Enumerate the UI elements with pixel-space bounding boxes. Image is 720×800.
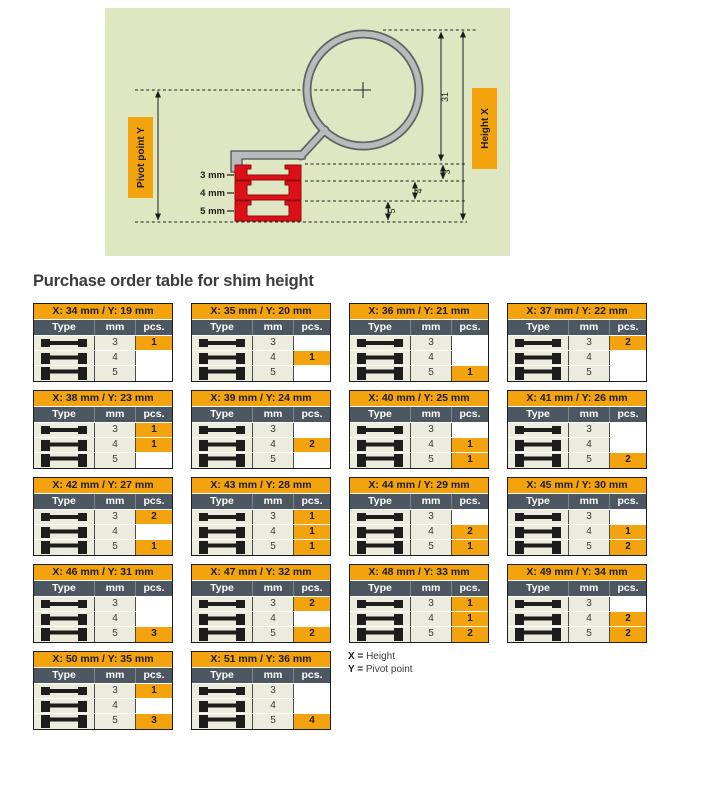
col-header-type: Type [508, 494, 569, 509]
clamp-diagram: 3 mm 4 mm 5 mm 31 3 4 5 Pivot point Y He… [105, 8, 510, 256]
table-row: 5 1 [192, 540, 330, 555]
pcs-value: 1 [452, 438, 488, 452]
table-title: X: 36 mm / Y: 21 mm [350, 304, 488, 320]
tables-grid: X: 34 mm / Y: 19 mm Type mm pcs. 3 1 4 5 [33, 303, 647, 730]
shim-4mm-icon [508, 351, 569, 365]
table-title: X: 48 mm / Y: 33 mm [350, 565, 488, 581]
table-title: X: 46 mm / Y: 31 mm [34, 565, 172, 581]
mm-value: 5 [569, 540, 610, 555]
pcs-value: 2 [294, 597, 330, 611]
table-row: 4 1 [350, 612, 488, 627]
shim-5mm-icon [192, 627, 253, 642]
legend: X = Height Y = Pivot point [348, 650, 413, 676]
pivot-point-badge: Pivot point Y [128, 117, 153, 198]
table-row: 4 [508, 438, 646, 453]
shim-3mm-label: 3 mm [200, 170, 225, 181]
pcs-value [452, 336, 488, 350]
table-header-row: Type mm pcs. [192, 407, 330, 423]
mm-value: 4 [411, 351, 452, 365]
shim-order-table: X: 50 mm / Y: 35 mm Type mm pcs. 3 1 4 5 [33, 651, 173, 730]
pcs-value: 1 [452, 453, 488, 468]
mm-value: 5 [569, 453, 610, 468]
mm-value: 5 [95, 627, 136, 642]
shim-4mm-icon [192, 525, 253, 539]
table-title: X: 37 mm / Y: 22 mm [508, 304, 646, 320]
pcs-value [610, 510, 646, 524]
table-row: 5 3 [34, 627, 172, 642]
pcs-value: 2 [610, 612, 646, 626]
col-header-pcs: pcs. [452, 320, 488, 335]
table-row: 3 1 [350, 597, 488, 612]
pcs-value: 1 [294, 540, 330, 555]
col-header-mm: mm [411, 581, 452, 596]
mm-value: 4 [411, 525, 452, 539]
mm-value: 5 [95, 453, 136, 468]
mm-value: 5 [253, 366, 294, 381]
shim-3mm-icon [508, 510, 569, 524]
pcs-value [136, 453, 172, 468]
table-header-row: Type mm pcs. [350, 581, 488, 597]
shim-3mm-icon [508, 423, 569, 437]
shim-3mm-icon [350, 510, 411, 524]
page-title: Purchase order table for shim height [33, 272, 314, 291]
table-row: 3 [192, 336, 330, 351]
pcs-value [294, 684, 330, 698]
shim-3mm-icon [192, 510, 253, 524]
table-row: 3 1 [34, 423, 172, 438]
shim-order-table: X: 51 mm / Y: 36 mm Type mm pcs. 3 4 5 4 [191, 651, 331, 730]
pcs-value [452, 351, 488, 365]
mm-value: 4 [253, 351, 294, 365]
col-header-mm: mm [569, 494, 610, 509]
col-header-type: Type [34, 494, 95, 509]
pcs-value [294, 366, 330, 381]
mm-value: 3 [95, 336, 136, 350]
mm-value: 3 [569, 336, 610, 350]
table-row: 4 1 [508, 525, 646, 540]
col-header-mm: mm [95, 320, 136, 335]
table-header-row: Type mm pcs. [192, 581, 330, 597]
shim-order-table: X: 37 mm / Y: 22 mm Type mm pcs. 3 2 4 5 [507, 303, 647, 382]
col-header-type: Type [508, 320, 569, 335]
shim-5mm-icon [350, 540, 411, 555]
table-row: 5 [192, 453, 330, 468]
shim-3mm-icon [350, 336, 411, 350]
pcs-value: 1 [294, 510, 330, 524]
shim-5mm-icon [350, 453, 411, 468]
shim-5mm-icon [508, 540, 569, 555]
shim-order-table: X: 36 mm / Y: 21 mm Type mm pcs. 3 4 5 1 [349, 303, 489, 382]
col-header-mm: mm [569, 320, 610, 335]
pcs-value [610, 351, 646, 365]
col-header-mm: mm [95, 494, 136, 509]
table-title: X: 40 mm / Y: 25 mm [350, 391, 488, 407]
col-header-mm: mm [253, 320, 294, 335]
shim-5mm-icon [508, 627, 569, 642]
pcs-value: 1 [136, 684, 172, 698]
table-row: 4 1 [34, 438, 172, 453]
pcs-value: 2 [452, 525, 488, 539]
legend-y-key: Y = [348, 664, 363, 675]
shim-5mm-icon [350, 627, 411, 642]
shim-4mm-icon [508, 438, 569, 452]
col-header-mm: mm [253, 668, 294, 683]
mm-value: 3 [411, 597, 452, 611]
shim-4mm-icon [34, 699, 95, 713]
legend-x-text: Height [366, 651, 395, 662]
mm-value: 3 [253, 336, 294, 350]
pcs-value: 2 [610, 453, 646, 468]
pcs-value: 3 [136, 627, 172, 642]
table-row: 3 [192, 423, 330, 438]
table-row: 4 [34, 351, 172, 366]
pcs-value [294, 612, 330, 626]
shim-3mm-icon [34, 597, 95, 611]
col-header-type: Type [192, 320, 253, 335]
dim-loop-31-value: 31 [440, 92, 450, 102]
table-header-row: Type mm pcs. [350, 320, 488, 336]
table-row: 5 [192, 366, 330, 381]
col-header-pcs: pcs. [136, 407, 172, 422]
table-title: X: 42 mm / Y: 27 mm [34, 478, 172, 494]
pcs-value [136, 366, 172, 381]
shim-3mm-icon [350, 423, 411, 437]
pcs-value [452, 510, 488, 524]
col-header-type: Type [350, 581, 411, 596]
mm-value: 4 [569, 525, 610, 539]
svg-text:Height X: Height X [480, 108, 491, 149]
pcs-value [136, 699, 172, 713]
shim-3mm-icon [34, 336, 95, 350]
col-header-pcs: pcs. [610, 320, 646, 335]
table-row: 4 [34, 612, 172, 627]
shim-5mm-icon [192, 366, 253, 381]
table-title: X: 45 mm / Y: 30 mm [508, 478, 646, 494]
legend-y: Y = Pivot point [348, 663, 413, 676]
dim-3-value: 3 [442, 169, 452, 174]
mm-value: 3 [411, 510, 452, 524]
table-title: X: 38 mm / Y: 23 mm [34, 391, 172, 407]
table-row: 4 [508, 351, 646, 366]
col-header-type: Type [508, 581, 569, 596]
table-row: 5 4 [192, 714, 330, 729]
col-header-type: Type [350, 407, 411, 422]
mm-value: 4 [569, 351, 610, 365]
col-header-mm: mm [253, 407, 294, 422]
table-row: 5 [34, 366, 172, 381]
shim-stack [235, 165, 301, 221]
col-header-pcs: pcs. [294, 668, 330, 683]
shim-4mm-icon [192, 612, 253, 626]
legend-x-key: X = [348, 651, 363, 662]
col-header-pcs: pcs. [452, 581, 488, 596]
shim-4mm-icon [508, 525, 569, 539]
shim-5mm-icon [192, 714, 253, 729]
shim-size-labels: 3 mm 4 mm 5 mm [200, 170, 234, 217]
table-title: X: 39 mm / Y: 24 mm [192, 391, 330, 407]
table-header-row: Type mm pcs. [192, 668, 330, 684]
table-row: 3 [508, 510, 646, 525]
mm-value: 5 [253, 540, 294, 555]
col-header-mm: mm [569, 581, 610, 596]
mm-value: 4 [95, 699, 136, 713]
table-row: 4 [192, 699, 330, 714]
mm-value: 5 [95, 540, 136, 555]
table-row: 3 [34, 597, 172, 612]
shim-5mm-icon [192, 540, 253, 555]
mm-value: 4 [411, 612, 452, 626]
table-header-row: Type mm pcs. [34, 494, 172, 510]
table-title: X: 35 mm / Y: 20 mm [192, 304, 330, 320]
shim-4mm-icon [34, 438, 95, 452]
table-title: X: 43 mm / Y: 28 mm [192, 478, 330, 494]
col-header-mm: mm [253, 581, 294, 596]
shim-3mm-icon [34, 423, 95, 437]
shim-order-table: X: 35 mm / Y: 20 mm Type mm pcs. 3 4 1 5 [191, 303, 331, 382]
shim-order-table: X: 46 mm / Y: 31 mm Type mm pcs. 3 4 5 3 [33, 564, 173, 643]
shim-4mm-icon [350, 612, 411, 626]
mm-value: 5 [411, 366, 452, 381]
shim-5mm-icon [34, 366, 95, 381]
col-header-mm: mm [253, 494, 294, 509]
shim-5mm-icon [192, 453, 253, 468]
mm-value: 3 [95, 510, 136, 524]
shim-5mm-icon [34, 540, 95, 555]
table-row: 4 [34, 525, 172, 540]
shim-5mm-icon [34, 627, 95, 642]
svg-text:Pivot point Y: Pivot point Y [136, 127, 147, 188]
mm-value: 4 [253, 438, 294, 452]
pcs-value: 2 [452, 627, 488, 642]
pcs-value [294, 699, 330, 713]
pcs-value: 2 [136, 510, 172, 524]
table-row: 4 [34, 699, 172, 714]
mm-value: 4 [253, 612, 294, 626]
shim-4mm-icon [34, 525, 95, 539]
shim-order-table: X: 44 mm / Y: 29 mm Type mm pcs. 3 4 2 5 [349, 477, 489, 556]
table-row: 4 1 [192, 351, 330, 366]
shim-4mm-icon [192, 438, 253, 452]
pcs-value: 4 [294, 714, 330, 729]
pcs-value: 2 [610, 627, 646, 642]
pcs-value: 1 [610, 525, 646, 539]
shim-3mm-icon [192, 336, 253, 350]
shim-order-table: X: 40 mm / Y: 25 mm Type mm pcs. 3 4 1 5 [349, 390, 489, 469]
mm-value: 3 [411, 423, 452, 437]
mm-value: 5 [411, 540, 452, 555]
table-title: X: 50 mm / Y: 35 mm [34, 652, 172, 668]
table-row: 4 [350, 351, 488, 366]
mm-value: 5 [95, 714, 136, 729]
table-header-row: Type mm pcs. [350, 407, 488, 423]
col-header-type: Type [350, 320, 411, 335]
table-row: 3 [508, 597, 646, 612]
pcs-value [610, 597, 646, 611]
col-header-pcs: pcs. [294, 581, 330, 596]
table-row: 4 2 [350, 525, 488, 540]
table-row: 3 [350, 336, 488, 351]
loop-center-crosshair [355, 82, 371, 98]
table-header-row: Type mm pcs. [350, 494, 488, 510]
pivot-badge-text: Pivot point [136, 134, 147, 188]
table-row: 5 2 [508, 540, 646, 555]
pcs-value: 1 [452, 612, 488, 626]
mm-value: 3 [569, 597, 610, 611]
table-row: 5 2 [508, 453, 646, 468]
pcs-value [136, 612, 172, 626]
mm-value: 3 [411, 336, 452, 350]
shim-order-table: X: 45 mm / Y: 30 mm Type mm pcs. 3 4 1 5 [507, 477, 647, 556]
col-header-type: Type [34, 668, 95, 683]
mm-value: 3 [253, 423, 294, 437]
pcs-value [136, 525, 172, 539]
mm-value: 4 [95, 438, 136, 452]
pcs-value: 1 [452, 540, 488, 555]
pcs-value: 1 [294, 351, 330, 365]
col-header-mm: mm [569, 407, 610, 422]
pcs-value [136, 351, 172, 365]
col-header-pcs: pcs. [610, 407, 646, 422]
shim-5mm-label: 5 mm [200, 206, 225, 217]
mm-value: 5 [569, 366, 610, 381]
pcs-value: 1 [452, 597, 488, 611]
table-header-row: Type mm pcs. [34, 581, 172, 597]
col-header-pcs: pcs. [294, 407, 330, 422]
table-row: 5 [508, 366, 646, 381]
table-row: 5 1 [34, 540, 172, 555]
col-header-type: Type [192, 581, 253, 596]
col-header-pcs: pcs. [136, 320, 172, 335]
col-header-mm: mm [95, 668, 136, 683]
shim-5mm-profile [235, 201, 301, 221]
col-header-type: Type [192, 668, 253, 683]
shim-order-table: X: 42 mm / Y: 27 mm Type mm pcs. 3 2 4 5 [33, 477, 173, 556]
mm-value: 4 [253, 699, 294, 713]
shim-3mm-icon [350, 597, 411, 611]
col-header-mm: mm [411, 407, 452, 422]
table-row: 3 [350, 423, 488, 438]
shim-3mm-icon [192, 684, 253, 698]
shim-order-table: X: 38 mm / Y: 23 mm Type mm pcs. 3 1 4 1… [33, 390, 173, 469]
pcs-value: 1 [294, 525, 330, 539]
height-badge: Height X [472, 88, 497, 169]
table-row: 3 1 [34, 684, 172, 699]
shim-order-table: X: 34 mm / Y: 19 mm Type mm pcs. 3 1 4 5 [33, 303, 173, 382]
shim-order-table: X: 39 mm / Y: 24 mm Type mm pcs. 3 4 2 5 [191, 390, 331, 469]
shim-3mm-icon [508, 597, 569, 611]
dim-5-value: 5 [387, 208, 397, 213]
col-header-pcs: pcs. [610, 581, 646, 596]
col-header-pcs: pcs. [610, 494, 646, 509]
mm-value: 3 [569, 510, 610, 524]
table-title: X: 47 mm / Y: 32 mm [192, 565, 330, 581]
height-badge-suffix: X [480, 108, 491, 115]
shim-3mm-icon [34, 684, 95, 698]
pcs-value: 1 [136, 336, 172, 350]
col-header-pcs: pcs. [452, 494, 488, 509]
table-title: X: 44 mm / Y: 29 mm [350, 478, 488, 494]
pcs-value [136, 597, 172, 611]
shim-4mm-icon [34, 612, 95, 626]
col-header-pcs: pcs. [136, 494, 172, 509]
mm-value: 5 [411, 453, 452, 468]
shim-5mm-icon [350, 366, 411, 381]
mm-value: 3 [95, 597, 136, 611]
table-header-row: Type mm pcs. [34, 320, 172, 336]
table-header-row: Type mm pcs. [508, 494, 646, 510]
pivot-badge-suffix: Y [136, 127, 147, 134]
table-row: 4 2 [508, 612, 646, 627]
table-row: 5 2 [192, 627, 330, 642]
clamp-diagram-panel: 3 mm 4 mm 5 mm 31 3 4 5 Pivot point Y He… [105, 8, 510, 256]
legend-x: X = Height [348, 650, 413, 663]
pcs-value: 2 [294, 438, 330, 452]
shim-5mm-icon [34, 714, 95, 729]
shim-4mm-icon [350, 351, 411, 365]
mm-value: 5 [411, 627, 452, 642]
shim-order-table: X: 47 mm / Y: 32 mm Type mm pcs. 3 2 4 5 [191, 564, 331, 643]
legend-y-text: Pivot point [366, 664, 413, 675]
mm-value: 4 [411, 438, 452, 452]
pcs-value: 1 [136, 423, 172, 437]
pcs-value [610, 438, 646, 452]
col-header-pcs: pcs. [136, 581, 172, 596]
shim-4mm-icon [350, 438, 411, 452]
table-row: 3 2 [34, 510, 172, 525]
table-row: 3 2 [508, 336, 646, 351]
col-header-type: Type [34, 407, 95, 422]
shim-4mm-label: 4 mm [200, 188, 225, 199]
col-header-type: Type [350, 494, 411, 509]
col-header-pcs: pcs. [294, 494, 330, 509]
pcs-value: 1 [452, 366, 488, 381]
shim-order-table: X: 48 mm / Y: 33 mm Type mm pcs. 3 1 4 1… [349, 564, 489, 643]
mm-value: 4 [95, 525, 136, 539]
shim-4mm-icon [192, 699, 253, 713]
pcs-value: 1 [136, 540, 172, 555]
shim-4mm-icon [34, 351, 95, 365]
table-row: 3 [350, 510, 488, 525]
pcs-value [452, 423, 488, 437]
pcs-value [610, 366, 646, 381]
mm-value: 5 [569, 627, 610, 642]
table-header-row: Type mm pcs. [34, 407, 172, 423]
mm-value: 5 [253, 627, 294, 642]
table-header-row: Type mm pcs. [34, 668, 172, 684]
table-row: 5 1 [350, 366, 488, 381]
table-row: 4 [192, 612, 330, 627]
mm-value: 3 [95, 684, 136, 698]
table-row: 5 1 [350, 453, 488, 468]
mm-value: 4 [253, 525, 294, 539]
table-row: 3 1 [34, 336, 172, 351]
table-row: 3 [508, 423, 646, 438]
pcs-value: 1 [136, 438, 172, 452]
shim-5mm-icon [508, 366, 569, 381]
mm-value: 5 [253, 714, 294, 729]
shim-5mm-icon [34, 453, 95, 468]
col-header-mm: mm [411, 494, 452, 509]
table-row: 4 2 [192, 438, 330, 453]
table-header-row: Type mm pcs. [508, 407, 646, 423]
table-row: 4 1 [350, 438, 488, 453]
mm-value: 4 [95, 612, 136, 626]
shim-3mm-icon [192, 423, 253, 437]
col-header-type: Type [34, 320, 95, 335]
shim-4mm-icon [192, 351, 253, 365]
mm-value: 3 [95, 423, 136, 437]
col-header-mm: mm [411, 320, 452, 335]
